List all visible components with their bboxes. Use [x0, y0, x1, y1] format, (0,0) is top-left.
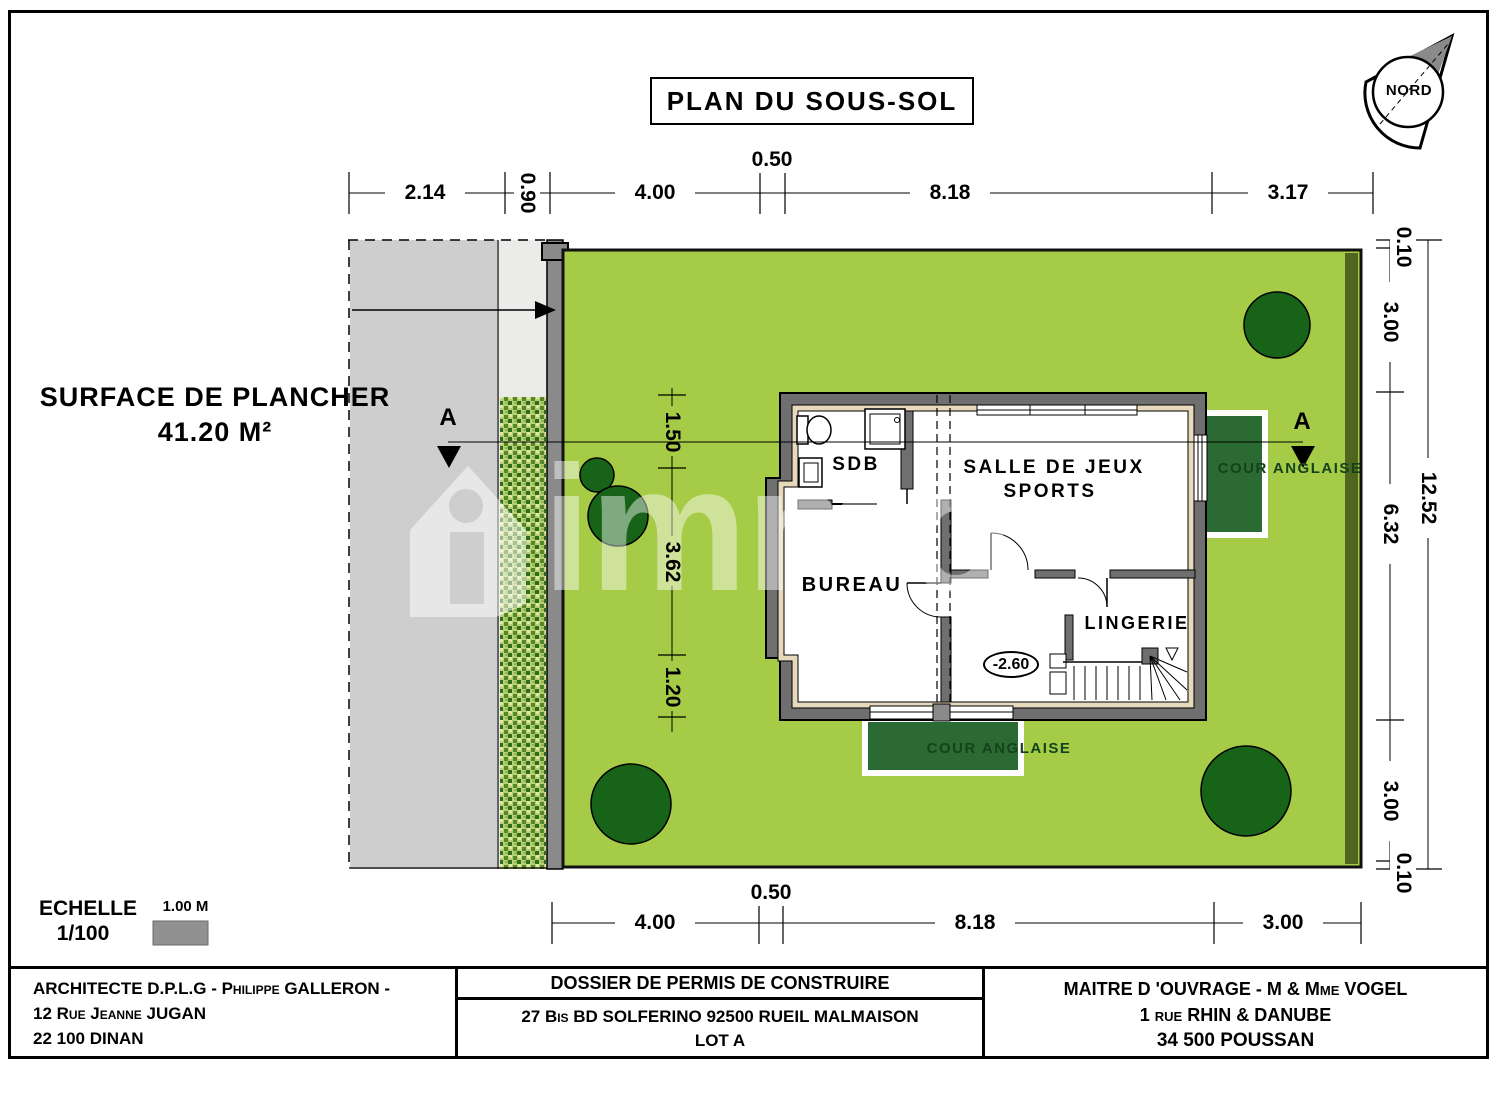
shower-icon	[865, 409, 905, 449]
architect-line: ARCHITECTE D.P.L.G - Philippe GALLERON -	[33, 976, 455, 1001]
dossier-address: 27 Bis BD SOLFERINO 92500 RUEIL MALMAISO…	[458, 1005, 982, 1029]
title-block-owner: MAITRE D 'OUVRAGE - M & Mme VOGEL 1 rue …	[985, 969, 1486, 1056]
cour-anglaise-right-label: COUR ANGLAISE	[1190, 461, 1390, 478]
boundary-wall	[547, 240, 563, 869]
room-label-sdb: SDB	[776, 455, 936, 476]
title-block-dossier: DOSSIER DE PERMIS DE CONSTRUIRE 27 Bis B…	[458, 969, 985, 1056]
dim-right-4: 3.00	[1377, 761, 1403, 841]
dim-bottom-1: 4.00	[615, 910, 695, 936]
scale-bar-label: 1.00 M	[148, 899, 223, 916]
paved-area	[350, 240, 497, 869]
dim-interior-3: 1.20	[659, 647, 685, 727]
dim-top-6: 3.17	[1248, 180, 1328, 206]
level-badge: -2.60	[983, 651, 1039, 678]
room-label-sports: SPORTS	[950, 482, 1150, 503]
title-block: ARCHITECTE D.P.L.G - Philippe GALLERON -…	[8, 966, 1489, 1059]
room-label-salle-de-jeux: SALLE DE JEUX	[954, 458, 1154, 479]
tree-icon	[588, 486, 648, 546]
dim-right-1: 0.10	[1390, 207, 1416, 287]
dim-right-2: 3.00	[1377, 282, 1403, 362]
dim-top-4: 0.50	[732, 147, 812, 173]
tree-icon	[591, 764, 671, 844]
surface-value: 41.20 M²	[25, 418, 405, 448]
architect-line: 22 100 DINAN	[33, 1026, 455, 1051]
hedge	[500, 397, 546, 869]
dim-right-5: 0.10	[1390, 833, 1416, 913]
surface-label: SURFACE DE PLANCHER	[25, 383, 405, 413]
architect-line: 12 Rue Jeanne JUGAN	[33, 1001, 455, 1026]
dossier-lot: LOT A	[458, 1029, 982, 1053]
dim-top-3: 4.00	[615, 180, 695, 206]
toilet-icon	[797, 416, 831, 444]
cour-anglaise-bottom-label: COUR ANGLAISE	[899, 741, 1099, 758]
section-marker-a-left: A	[433, 405, 463, 431]
dim-right-total: 12.52	[1415, 458, 1441, 538]
room-label-lingerie: LINGERIE	[1037, 614, 1237, 634]
north-label: NORD	[1380, 83, 1438, 100]
dim-right-3: 6.32	[1377, 484, 1403, 564]
scale-bar	[153, 921, 208, 945]
dim-bottom-2: 0.50	[731, 880, 811, 906]
owner-line: 34 500 POUSSAN	[985, 1028, 1486, 1054]
dim-interior-2: 3.62	[659, 522, 685, 602]
dim-top-1: 2.14	[385, 180, 465, 206]
section-marker-a-right: A	[1287, 409, 1317, 435]
room-label-bureau: BUREAU	[752, 574, 952, 596]
dim-bottom-3: 8.18	[935, 910, 1015, 936]
dim-bottom-4: 3.00	[1243, 910, 1323, 936]
tree-icon	[1244, 292, 1310, 358]
dossier-title: DOSSIER DE PERMIS DE CONSTRUIRE	[458, 969, 982, 1000]
dim-top-2: 0.90	[514, 153, 540, 233]
page-title: PLAN DU SOUS-SOL	[650, 77, 974, 125]
scale-label: ECHELLE	[28, 897, 148, 920]
owner-line: 1 rue RHIN & DANUBE	[985, 1002, 1486, 1028]
owner-line: MAITRE D 'OUVRAGE - M & Mme VOGEL	[985, 976, 1486, 1002]
title-block-architect: ARCHITECTE D.P.L.G - Philippe GALLERON -…	[11, 969, 458, 1056]
scale-ratio: 1/100	[28, 922, 138, 945]
dim-top-5: 8.18	[910, 180, 990, 206]
dim-interior-1: 1.50	[659, 392, 685, 472]
tree-icon	[1201, 746, 1291, 836]
